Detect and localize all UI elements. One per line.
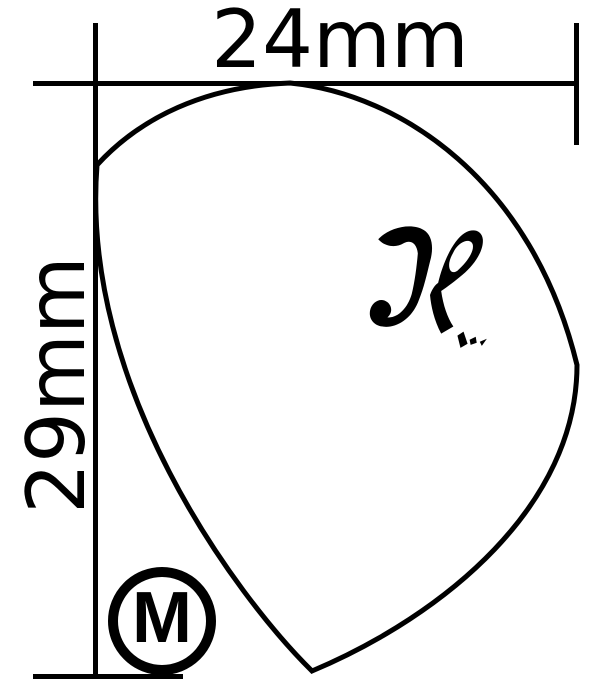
logo-nib-marks-icon: [457, 332, 486, 348]
pick-outline: [0, 0, 600, 680]
logo-h-right-stroke: [430, 230, 483, 333]
pick-dimension-diagram: 24mm 29mm H M: [0, 0, 600, 680]
gauge-badge-letter: M: [132, 582, 192, 660]
logo-h-icon: [368, 225, 490, 357]
logo-h-left-stroke: [370, 226, 432, 327]
gauge-badge: M: [108, 567, 216, 675]
